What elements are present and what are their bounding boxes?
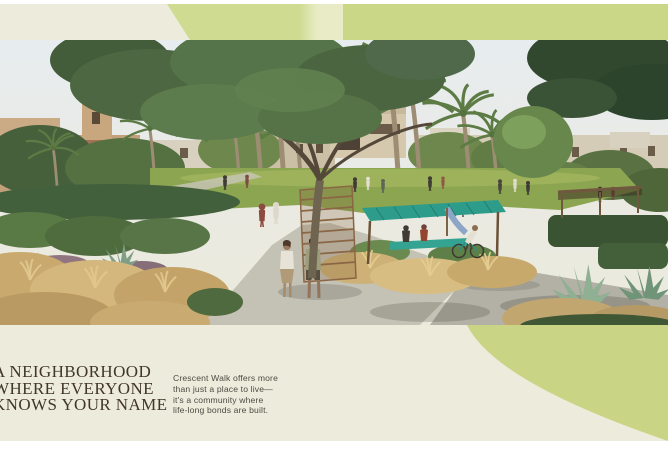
body-line-4: life-long bonds are built. — [173, 405, 278, 416]
headline-line-3: KNOWS YOUR NAME — [0, 397, 167, 414]
top-band — [0, 4, 668, 40]
body-line-3: it's a community where — [173, 395, 278, 406]
bottom-margin — [0, 441, 668, 452]
body-line-1: Crescent Walk offers more — [173, 373, 278, 384]
brochure-page: A NEIGHBORHOOD WHERE EVERYONE KNOWS YOUR… — [0, 0, 668, 452]
band-cream-wedge — [0, 4, 200, 40]
body-copy: Crescent Walk offers more than just a pl… — [173, 373, 278, 416]
gutter-highlight — [299, 4, 343, 40]
body-line-2: than just a place to live— — [173, 384, 278, 395]
headline: A NEIGHBORHOOD WHERE EVERYONE KNOWS YOUR… — [0, 364, 167, 414]
hero-image — [0, 40, 668, 325]
bottom-section: A NEIGHBORHOOD WHERE EVERYONE KNOWS YOUR… — [0, 325, 668, 441]
green-swoosh — [325, 325, 668, 441]
top-margin — [0, 0, 668, 4]
